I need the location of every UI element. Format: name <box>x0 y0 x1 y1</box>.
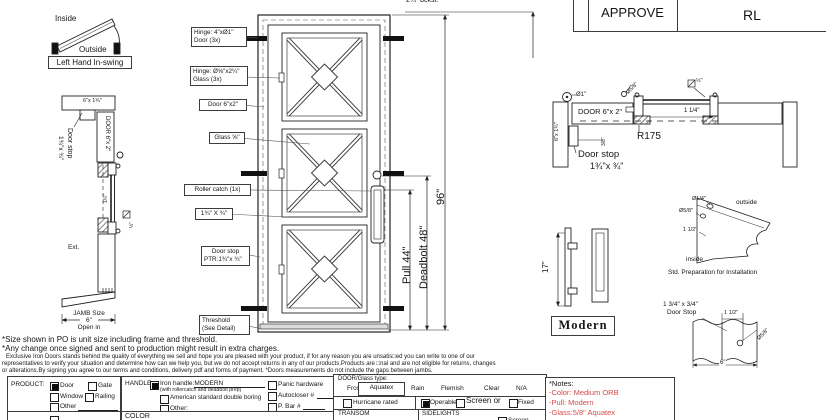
checkbox-panic-hardware <box>268 381 277 390</box>
swing-caption: Left Hand In-swing <box>48 56 132 69</box>
pbar-label: P. Bar # <box>278 403 301 410</box>
checkbox-cutoff <box>50 416 59 420</box>
label-stop-size: 1¾" X ¾" <box>195 208 233 220</box>
handle-option-american: American standard double boring <box>170 395 261 402</box>
dim-height: 96" <box>436 189 448 205</box>
stop-detail-width: 6" <box>719 360 726 366</box>
label-threshold: Threshold (See Detail) <box>199 315 250 335</box>
notes-box: *Notes: -Color: Medium ORB -Pull: Modern… <box>545 377 675 420</box>
section-door-size: DOOR 6"x 2" <box>578 108 622 116</box>
section-radius: R175 <box>637 132 661 143</box>
left-door-stop-size: 1¾"x ¾" <box>57 136 64 160</box>
note-color: -Color: Medium ORB <box>549 389 619 397</box>
prep-dia58: Ø5/8" <box>679 209 693 215</box>
stop-detail-dim112: 1 1/2" <box>724 311 738 317</box>
section-door-stop-size: 1¾"x ¾" <box>590 162 623 172</box>
product-box: PRODUCT: Door Gate Window Railing Other <box>7 376 121 413</box>
product-option-gate: Gate <box>98 382 112 389</box>
label-door-size: Door 6"x2" <box>199 99 247 111</box>
product-option-window: Window <box>60 393 83 400</box>
open-in-label: Open in <box>72 324 106 331</box>
dim-deadbolt: Deadbolt 48" <box>419 226 431 289</box>
glass-option-rain: Rain <box>411 385 424 392</box>
prep-inside-label: inside <box>686 256 703 263</box>
jamb-size-label: JAMB Size <box>70 310 108 317</box>
divider <box>415 396 416 409</box>
checkbox-gate <box>88 382 97 391</box>
swing-inside-label: Inside <box>55 15 76 24</box>
disclaimer-line-2: *Any change once signed and sent to prod… <box>2 345 279 354</box>
divider <box>418 409 419 420</box>
product-other-blank <box>78 403 118 411</box>
stop-detail-size: 1 3/4" x 3/4" <box>663 301 698 308</box>
label-hinge-door: Hinge: 4"xØ1" Door (3x) <box>191 27 247 47</box>
color-label: COLOR <box>125 413 150 420</box>
note-glass: -Glass:5/8" Aquatex <box>549 409 615 417</box>
prep-dim112: 1 1/2" <box>683 228 697 234</box>
pull-dim-17: 17" <box>542 261 551 273</box>
handle-box: HANDLE Iron handle:MODERN (with rollerca… <box>121 376 335 413</box>
left-head-size: 6"x 1¾" <box>83 99 102 105</box>
approval-table: APPROVE RL <box>573 0 826 32</box>
transom-label: TRANSOM <box>338 411 370 418</box>
section-door-stop-label: Door stop <box>578 150 619 160</box>
section-dim-38: 3/8" <box>602 137 607 146</box>
section-glass-thickness: ½" <box>696 79 703 85</box>
note-pull: -Pull: Modern <box>549 399 594 407</box>
prep-outside-label: outside <box>736 199 757 206</box>
checkbox-fixed <box>509 399 518 408</box>
backset-dim: 2¾" bckst. <box>406 0 438 5</box>
fine-print-2: representatives to verify your situation… <box>2 361 496 367</box>
handle-option-iron: Iron handle:MODERN <box>160 380 265 387</box>
notes-title: *Notes: <box>549 380 574 388</box>
dim-pull: Pull 44" <box>402 246 414 284</box>
panic-hardware-label: Panic hardware <box>278 381 323 388</box>
screen-or-label: Screen or <box>466 397 501 406</box>
operable-label: Operable <box>430 399 457 406</box>
glass-option-clear: Clear <box>484 385 500 392</box>
section-jamb-size: 6"x 1¾" <box>555 122 561 141</box>
glass-option-flemish: Flemish <box>441 385 464 392</box>
pull-model-label: Modern <box>551 316 615 336</box>
cutoff-row <box>7 411 121 420</box>
jamb-width: 6" <box>80 317 98 324</box>
label-roller-catch: Roller catch (1x) <box>184 184 251 196</box>
section-dia1: Ø1" <box>576 92 586 98</box>
product-option-railing: Railing <box>95 393 115 400</box>
label-glass: Glass ⅝" <box>209 132 245 144</box>
section-dim-114: 1 1/4" <box>684 108 699 114</box>
glass-option-aquatex-selected: Aquatex <box>358 382 405 396</box>
color-row: COLOR <box>121 411 335 420</box>
sidelights-label: SIDELIGHTS <box>422 411 459 418</box>
left-glass-thickness: ½" <box>130 222 135 228</box>
product-option-other: Other <box>60 403 76 410</box>
checkbox-hurricane <box>343 399 352 408</box>
autocloser-label: Autocloser # <box>278 392 314 399</box>
fine-print-1: Exclusive Iron Doors stands behind the q… <box>6 354 475 360</box>
swing-outside-label: Outside <box>79 46 107 55</box>
fixed-label: Fixed <box>518 399 534 406</box>
checkbox-door <box>50 382 59 391</box>
product-option-door: Door <box>60 382 74 389</box>
glass-option-na: N/A <box>516 385 527 392</box>
label-door-stop: Door stop PTR:1¾"x ¾" <box>201 246 250 266</box>
checkbox-window <box>50 393 59 402</box>
label-hinge-glass: Hinge: Ø⅝"x2¼" Glass (3x) <box>190 66 248 86</box>
approval-initials: RL <box>677 8 826 23</box>
door-spec-sheet: APPROVE RL Inside Outside Left Hand In-s… <box>0 0 826 420</box>
door-elevation-drawing <box>227 15 404 332</box>
approve-label: APPROVE <box>588 6 677 20</box>
product-label: PRODUCT: <box>11 381 44 388</box>
pull-handle-drawing <box>558 228 608 306</box>
checkbox-operable <box>421 399 430 408</box>
handle-label: HANDLE <box>125 380 151 387</box>
checkbox-railing <box>85 393 94 402</box>
hurricane-label: Hurricane rated <box>353 399 398 406</box>
left-dim-1-14: 1¼" <box>104 194 109 203</box>
prep-dia14: Ø1/4" <box>692 197 706 203</box>
stop-detail-label: Door Stop <box>667 309 696 316</box>
fine-print-3: or alterations.By signing you agree to o… <box>2 368 433 374</box>
prep-caption: Std. Preparation for Installation <box>668 269 757 276</box>
lock-prep-drawing <box>696 198 770 263</box>
checkbox-iron-handle <box>150 381 159 390</box>
checkbox-american-boring <box>160 395 169 404</box>
checkbox-screen-or <box>456 399 465 408</box>
checkbox-autocloser <box>268 392 277 401</box>
left-door-stop-label: Door stop <box>65 128 73 158</box>
glass-type-box: DOOR/Glass type: Frost Aquatex Rain Flem… <box>333 374 547 420</box>
exterior-label: Ext. <box>68 244 79 251</box>
pbar-blank <box>303 403 325 410</box>
handle-iron-sub: (with rollercatch and deadbolt prep) <box>160 388 241 394</box>
divider <box>334 396 546 397</box>
left-door-size: DOOR 6"x 2" <box>104 116 110 151</box>
